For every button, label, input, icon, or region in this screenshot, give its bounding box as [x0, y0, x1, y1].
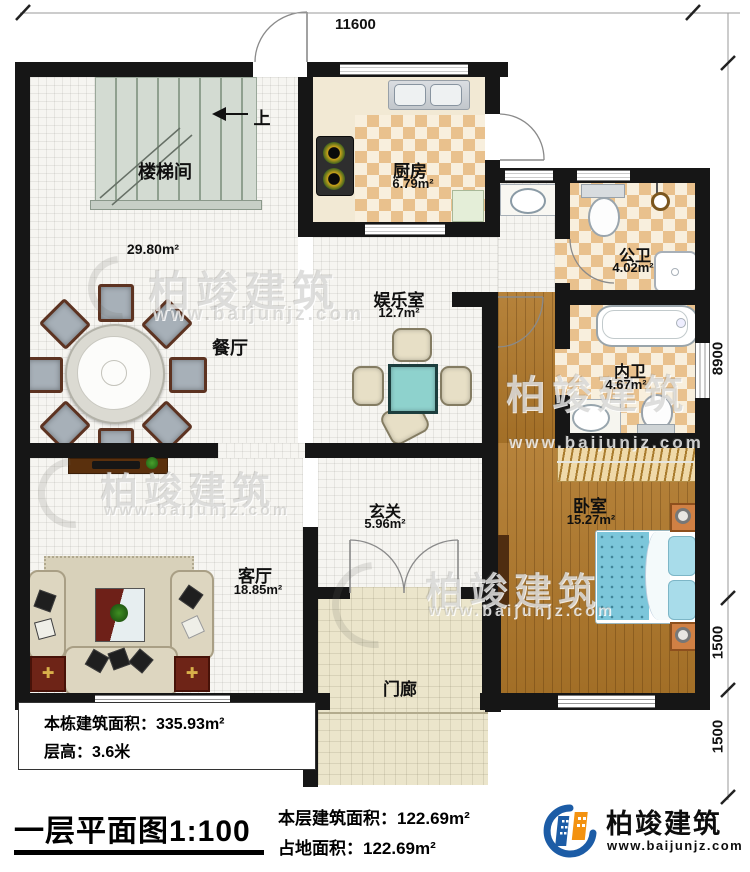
wall: [298, 77, 313, 237]
toilet-tank: [581, 184, 625, 198]
area-label-foyer: 5.96m²: [335, 516, 435, 531]
staircase: [95, 77, 257, 204]
door-arc: [255, 12, 307, 62]
game-table: [388, 364, 438, 414]
wall: [485, 62, 500, 114]
sofa-left: [28, 570, 66, 660]
dimension-top: 11600: [335, 16, 376, 33]
plant: [146, 457, 158, 469]
end-table: ✚: [174, 656, 210, 692]
area-label-public-bath: 4.02m²: [583, 260, 683, 275]
bathtub-inner: [602, 310, 688, 339]
dimension-right-1500b: 1500: [710, 714, 727, 760]
bedroom-door-leaf: [498, 535, 509, 607]
dimension-tick: [721, 683, 735, 697]
plan-title: 一层平面图1:100: [14, 806, 251, 850]
wall: [460, 587, 488, 599]
floor-plan-canvas: ✚ ✚: [0, 0, 750, 872]
bathtub-drain: [676, 318, 686, 328]
dining-chair: [25, 357, 63, 393]
footprint-area-text: 占地面积：122.69m²: [278, 834, 436, 859]
stair-up-label: 上: [250, 104, 274, 129]
floor-drain: [651, 192, 670, 211]
wardrobe-rod: [557, 461, 694, 463]
wall: [555, 305, 570, 349]
floor-corridor: [498, 292, 555, 443]
floor-height-text: 层高：3.6米: [44, 738, 130, 762]
stair-landing: [90, 200, 262, 210]
dining-chair: [169, 357, 207, 393]
nightstand-lamp: [675, 627, 691, 643]
area-label-bedroom: 15.27m²: [541, 512, 641, 527]
room-label-porch: 门廊: [350, 675, 450, 700]
window: [558, 695, 655, 708]
area-label-kitchen: 6.79m²: [363, 176, 463, 191]
wall: [555, 433, 705, 448]
dimension-tick: [721, 56, 735, 70]
wall: [15, 443, 218, 458]
kitchen-cabinet: [452, 190, 484, 222]
room-label-dining: 餐厅: [180, 334, 280, 360]
door-arc: [500, 114, 544, 160]
company-name: 柏竣建筑: [606, 802, 722, 841]
bed-pillow: [668, 536, 696, 576]
area-label-hall: 29.80m²: [103, 241, 203, 257]
game-chair: [440, 366, 472, 406]
dimension-tick: [686, 5, 700, 20]
area-label-private-bath: 4.67m²: [576, 377, 676, 392]
dining-table-center: [101, 360, 127, 386]
window: [340, 64, 468, 75]
stove-burner: [323, 168, 345, 190]
wall: [695, 183, 710, 343]
wall: [15, 77, 30, 710]
porch-step-line: [318, 712, 488, 714]
window: [577, 170, 630, 181]
wardrobe: [557, 446, 696, 482]
dimension-right-8900: 8900: [710, 336, 727, 382]
dimension-tick: [721, 591, 735, 605]
window: [365, 224, 445, 235]
coffee-table-plant: [110, 604, 128, 622]
dimension-tick: [721, 790, 735, 804]
floor-area-text: 本层建筑面积：122.69m²: [278, 804, 470, 829]
area-label-living: 18.85m²: [208, 582, 308, 597]
floor-passage: [218, 443, 305, 458]
wall: [555, 290, 705, 305]
sink-basin: [430, 84, 462, 106]
dimension-right-1500a: 1500: [710, 620, 727, 666]
toilet-bowl: [588, 197, 620, 237]
company-logo-icon: [540, 800, 600, 862]
bed-mattress: [597, 532, 649, 620]
corridor-washbasin: [510, 188, 546, 214]
company-url: www.baijunjz.com: [607, 838, 743, 853]
nightstand-lamp: [675, 508, 691, 524]
dimension-tick: [16, 5, 30, 20]
area-label-game: 12.7m²: [349, 305, 449, 320]
room-label-stairwell: 楼梯间: [115, 158, 215, 184]
end-table: ✚: [30, 656, 66, 692]
title-underline: [14, 850, 264, 855]
bath-washbasin: [572, 404, 610, 432]
door-opening: [253, 62, 307, 77]
sink-basin: [394, 84, 426, 106]
bed-sheet-fold: [645, 532, 670, 620]
game-chair: [392, 328, 432, 362]
game-chair: [352, 366, 384, 406]
stove-burner: [323, 142, 345, 164]
tv: [92, 461, 140, 469]
wall: [305, 443, 498, 458]
window: [505, 170, 553, 181]
bed-pillow: [668, 580, 696, 620]
window: [695, 343, 710, 398]
building-area-text: 本栋建筑面积：335.93m²: [44, 710, 225, 734]
wall: [555, 183, 570, 239]
